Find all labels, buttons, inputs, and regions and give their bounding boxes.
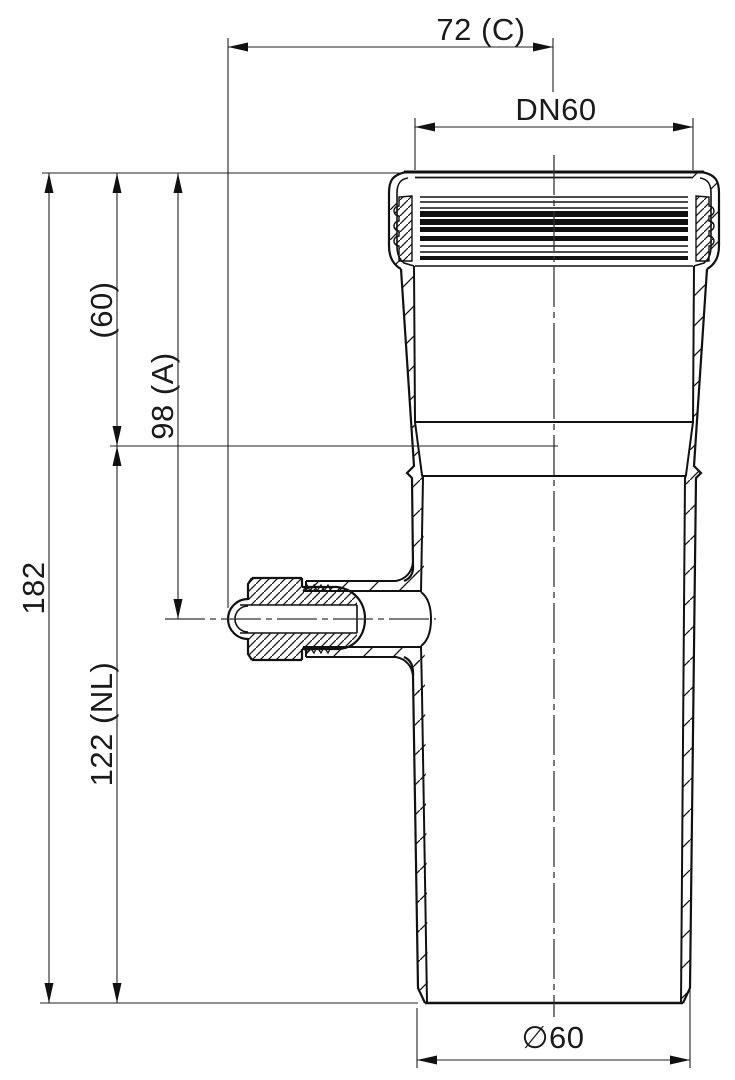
dim-label-overall-length: 182: [16, 561, 51, 614]
drawing-page: 72 (C) DN60 182 (60) 122 (NL): [0, 0, 735, 1080]
dimension-port-height: 98 (A): [145, 173, 183, 619]
dim-label-socket-depth: (60): [84, 281, 119, 338]
dimension-socket-depth: (60): [84, 173, 122, 446]
technical-drawing-canvas: 72 (C) DN60 182 (60) 122 (NL): [0, 0, 735, 1080]
dim-label-outlet-diameter: ∅60: [522, 1020, 585, 1055]
dim-label-port-offset: 72 (C): [436, 12, 525, 47]
dimension-body-length: 122 (NL): [84, 446, 122, 1003]
port-boss-lower: [306, 646, 422, 693]
dimension-port-offset: 72 (C): [228, 12, 553, 608]
dim-label-socket-diameter: DN60: [515, 92, 596, 127]
port-boss-upper: [306, 545, 423, 592]
dim-label-body-length: 122 (NL): [84, 662, 119, 787]
dimension-overall-length: 182: [16, 173, 54, 1003]
dim-label-port-height: 98 (A): [145, 352, 180, 439]
pipe-body-section: [303, 172, 719, 1003]
